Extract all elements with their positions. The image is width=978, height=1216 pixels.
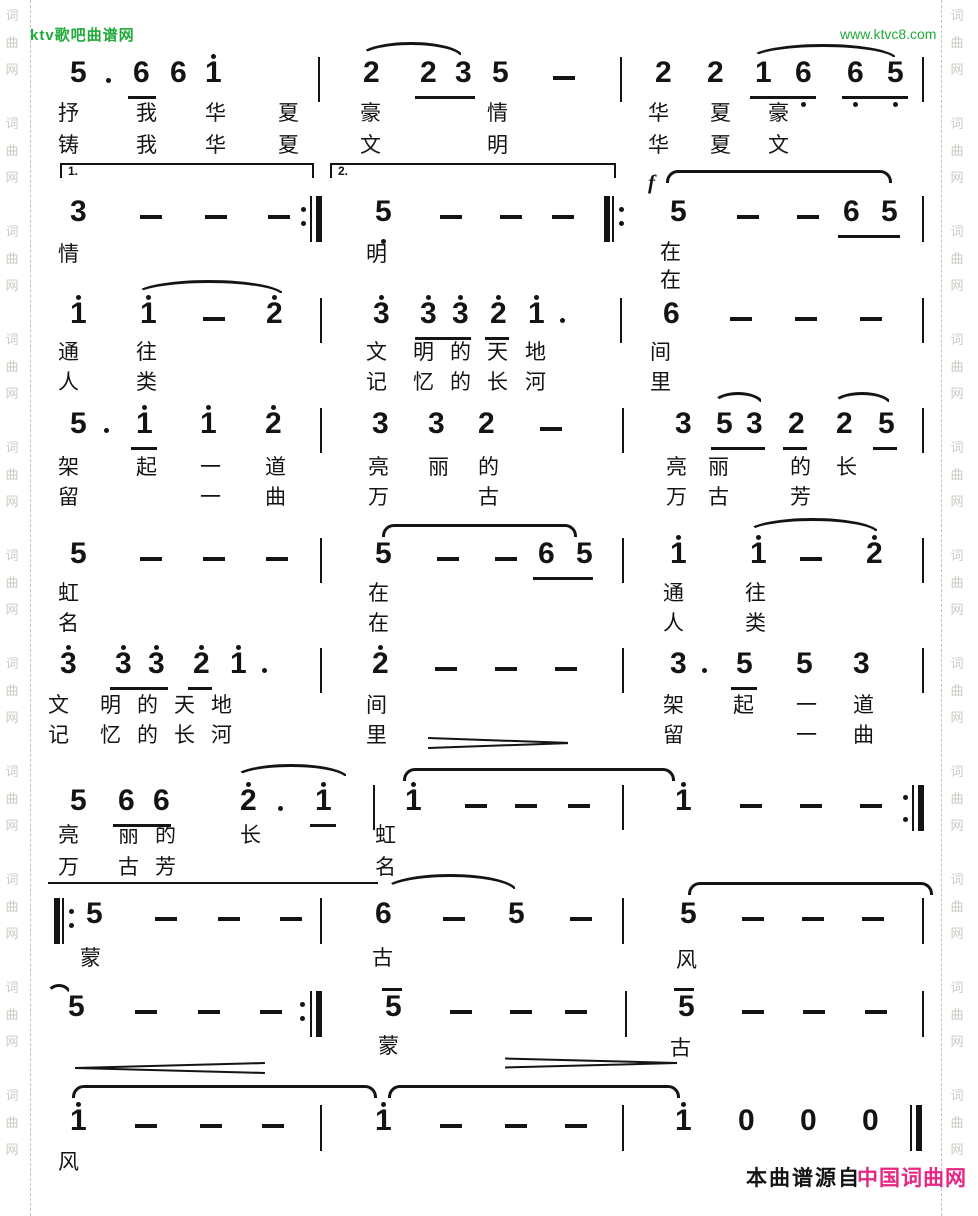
duration-dash [260, 1010, 282, 1014]
lyric-char: 蒙 [80, 948, 101, 969]
beam-underline [838, 235, 900, 238]
lyric-char: 明 [413, 342, 434, 363]
lyric-char: 我 [136, 135, 157, 156]
note-digit: 6 [170, 58, 187, 88]
duration-dash [860, 804, 882, 808]
lyric-char: 抒 [58, 103, 79, 124]
lyric-char: 明 [487, 135, 508, 156]
duration-dash [742, 1010, 764, 1014]
lyric-char: 曲 [265, 487, 286, 508]
barline [912, 785, 914, 831]
duration-dash [437, 557, 459, 561]
duration-dash [510, 1010, 532, 1014]
note-digit: 5 [508, 899, 525, 929]
note-digit: 6 [375, 899, 392, 929]
lyric-char: 古 [708, 487, 729, 508]
lyric-char: 夏 [278, 103, 299, 124]
lyric-char: 情 [487, 103, 508, 124]
lyric-char: 一 [200, 457, 221, 478]
lyric-char: 间 [366, 695, 387, 716]
duration-dash [435, 667, 457, 671]
source-label: 本曲谱源自 [746, 1162, 861, 1192]
volta-bracket: 2. [330, 163, 616, 178]
source-site: 中国词曲网 [857, 1162, 967, 1192]
lyric-char: 名 [58, 613, 79, 634]
note-digit: 5 [375, 197, 392, 227]
lyric-char: 文 [360, 135, 381, 156]
note-digit: 3 [420, 299, 437, 329]
lyric-char: 间 [650, 342, 671, 363]
dot [458, 295, 463, 300]
lyric-char: 古 [478, 487, 499, 508]
lyric-char: 亮 [666, 457, 687, 478]
note-digit: 3 [455, 58, 472, 88]
note-digit: 0 [800, 1106, 817, 1136]
lyric-char: 芳 [155, 857, 176, 878]
note-digit: 5 [678, 992, 695, 1022]
lyric-char: 在 [368, 583, 389, 604]
slur-arc [133, 280, 285, 296]
note-digit: 5 [492, 58, 509, 88]
note-digit: 1 [375, 1106, 392, 1136]
score-canvas: 56612235221665抒我华夏豪情华夏豪铸我华夏文明华夏文1.2.35f5… [0, 0, 978, 1216]
note-digit: 5 [576, 539, 593, 569]
duration-dash [802, 917, 824, 921]
note-digit: 3 [675, 409, 692, 439]
note-digit: 1 [750, 539, 767, 569]
barline [910, 1105, 912, 1151]
barline [62, 898, 64, 944]
lyric-char: 架 [663, 695, 684, 716]
dot [211, 54, 216, 59]
lyric-char: 人 [58, 372, 79, 393]
lyric-char: 留 [58, 487, 79, 508]
note-digit: 5 [70, 58, 87, 88]
lyric-char: 的 [790, 457, 811, 478]
beam-underline [415, 96, 475, 99]
duration-dash [730, 317, 752, 321]
volta-number: 1. [68, 165, 78, 177]
dot [69, 909, 74, 914]
lyric-char: 长 [240, 825, 261, 846]
note-digit: 2 [490, 299, 507, 329]
note-digit: 3 [373, 299, 390, 329]
dot [300, 1016, 305, 1021]
dot [206, 405, 211, 410]
dot [236, 645, 241, 650]
duration-dash [450, 1010, 472, 1014]
barline [612, 196, 614, 242]
duration-dash [495, 667, 517, 671]
dot [381, 1102, 386, 1107]
lyric-char: 夏 [710, 135, 731, 156]
note-digit: 5 [887, 58, 904, 88]
note-digit: 6 [847, 58, 864, 88]
note-digit: 5 [375, 539, 392, 569]
note-digit: 1 [675, 1106, 692, 1136]
note-digit: 2 [240, 786, 257, 816]
note-digit: 1 [755, 58, 772, 88]
dot [756, 535, 761, 540]
note-digit: 6 [843, 197, 860, 227]
duration-dash [803, 1010, 825, 1014]
dot [872, 535, 877, 540]
barline [922, 196, 924, 242]
duration-dash [553, 76, 575, 80]
lyric-char: 在 [368, 613, 389, 634]
dot [146, 295, 151, 300]
note-digit: 3 [70, 197, 87, 227]
lyric-char: 华 [648, 135, 669, 156]
duration-dash [742, 917, 764, 921]
lyric-char: 曲 [853, 725, 874, 746]
lyric-char: 记 [366, 372, 387, 393]
note-digit: 5 [878, 409, 895, 439]
lyric-char: 夏 [278, 135, 299, 156]
note-digit: 1 [140, 299, 157, 329]
dot [300, 1002, 305, 1007]
note-digit: 2 [836, 409, 853, 439]
sheet-music-page: 词 曲 网 词 曲 网 词 曲 网 词 曲 网 词 曲 网 词 曲 网 词 曲 … [0, 0, 978, 1216]
note-digit: 3 [148, 649, 165, 679]
note-digit: 2 [363, 58, 380, 88]
note-digit: 5 [716, 409, 733, 439]
dot [379, 295, 384, 300]
slur-arc [745, 518, 880, 534]
duration-dash [135, 1124, 157, 1128]
duration-dash [865, 1010, 887, 1014]
note-digit: 2 [420, 58, 437, 88]
lyric-char: 通 [663, 583, 684, 604]
slur-arc [832, 392, 892, 405]
barline [922, 648, 924, 693]
lyric-char: 类 [136, 372, 157, 393]
lyric-char: 华 [648, 103, 669, 124]
lyric-char: 的 [450, 342, 471, 363]
duration-dash [540, 427, 562, 431]
duration-dash [862, 917, 884, 921]
lyric-char: 天 [487, 342, 508, 363]
duration-dash [262, 1124, 284, 1128]
dot [411, 782, 416, 787]
lyric-char: 名 [375, 857, 396, 878]
note-digit: 1 [70, 299, 87, 329]
note-digit: 2 [655, 58, 672, 88]
note-digit: 2 [788, 409, 805, 439]
duration-dash [565, 1010, 587, 1014]
note-digit: 6 [153, 786, 170, 816]
barline-thick [918, 785, 924, 831]
lyric-char: 里 [650, 372, 671, 393]
duration-dash [505, 1124, 527, 1128]
barline [625, 991, 627, 1037]
barline [922, 991, 924, 1037]
dot [121, 645, 126, 650]
note-digit: 2 [478, 409, 495, 439]
duration-dash [200, 1124, 222, 1128]
duration-dash [140, 215, 162, 219]
lyric-char: 华 [205, 135, 226, 156]
lyric-char: 的 [155, 825, 176, 846]
barline [622, 648, 624, 693]
slur-arc [382, 874, 518, 892]
barline-thick [54, 898, 60, 944]
lyric-char: 人 [663, 613, 684, 634]
beam-underline [128, 96, 156, 99]
lyric-char: 长 [836, 457, 857, 478]
barline [622, 538, 624, 583]
dot [278, 806, 283, 811]
note-digit: 5 [736, 649, 753, 679]
barline-thick [916, 1105, 922, 1151]
dot [66, 645, 71, 650]
dot [619, 221, 624, 226]
note-digit: 0 [738, 1106, 755, 1136]
lyric-char: 一 [796, 695, 817, 716]
lyric-char: 古 [372, 948, 393, 969]
note-digit: 6 [663, 299, 680, 329]
note-digit: 3 [372, 409, 389, 439]
beam-underline [750, 96, 816, 99]
note-digit: 0 [862, 1106, 879, 1136]
lyric-char: 古 [118, 857, 139, 878]
note-digit: 5 [68, 992, 85, 1022]
lyric-char: 明 [100, 695, 121, 716]
note-digit: 1 [230, 649, 247, 679]
barline [922, 298, 924, 343]
dot [104, 428, 109, 433]
dot [893, 102, 898, 107]
dot [69, 923, 74, 928]
lyric-char: 架 [58, 457, 79, 478]
duration-dash [280, 917, 302, 921]
dot [534, 295, 539, 300]
lyric-char: 万 [666, 487, 687, 508]
barline [318, 57, 320, 102]
phrase-slur [72, 1085, 377, 1098]
duration-dash [500, 215, 522, 219]
barline [622, 785, 624, 830]
phrase-slur [403, 768, 675, 781]
note-digit: 1 [136, 409, 153, 439]
duration-dash [205, 215, 227, 219]
duration-dash [155, 917, 177, 921]
dot [378, 645, 383, 650]
note-digit: 5 [670, 197, 687, 227]
dynamic-f: f [648, 172, 655, 193]
note-digit: 2 [866, 539, 883, 569]
lyric-char: 风 [676, 950, 697, 971]
barline-thick [604, 196, 610, 242]
dot [560, 318, 565, 323]
lyric-char: 地 [211, 695, 232, 716]
barline [620, 298, 622, 343]
note-digit: 1 [70, 1106, 87, 1136]
lyric-char: 蒙 [378, 1036, 399, 1057]
lyric-char: 往 [136, 342, 157, 363]
phrase-slur [688, 882, 933, 895]
note-digit: 2 [372, 649, 389, 679]
dot [301, 221, 306, 226]
dot [154, 645, 159, 650]
lyric-char: 华 [205, 103, 226, 124]
lyric-char: 长 [487, 372, 508, 393]
lyric-char: 的 [478, 457, 499, 478]
note-digit: 3 [853, 649, 870, 679]
note-digit: 1 [528, 299, 545, 329]
lyric-char: 忆 [413, 372, 434, 393]
note-digit: 1 [200, 409, 217, 439]
dot [301, 207, 306, 212]
hairpin-line [505, 1062, 677, 1069]
beam-underline [310, 824, 336, 827]
note-digit: 2 [266, 299, 283, 329]
lyric-char: 亮 [368, 457, 389, 478]
duration-dash [740, 804, 762, 808]
lyric-char: 天 [174, 695, 195, 716]
lyric-char: 虹 [375, 825, 396, 846]
barline [922, 57, 924, 102]
phrase-slur [666, 170, 892, 183]
barline-thick [316, 991, 322, 1037]
lyric-char: 万 [58, 857, 79, 878]
note-digit: 1 [405, 786, 422, 816]
lyric-char: 豪 [360, 103, 381, 124]
beam-underline [711, 447, 765, 450]
duration-dash [552, 215, 574, 219]
barline [922, 408, 924, 453]
lyric-char: 道 [853, 695, 874, 716]
duration-dash [140, 557, 162, 561]
lyric-char: 通 [58, 342, 79, 363]
lyric-char: 记 [48, 725, 69, 746]
note-digit: 6 [795, 58, 812, 88]
dot [106, 78, 111, 83]
barline [310, 196, 312, 242]
lyric-char: 道 [265, 457, 286, 478]
beam-underline [842, 96, 908, 99]
note-digit: 2 [193, 649, 210, 679]
lyric-char: 留 [663, 725, 684, 746]
dot [76, 1102, 81, 1107]
dot [246, 782, 251, 787]
hairpin-line [48, 882, 378, 884]
dot [199, 645, 204, 650]
lyric-char: 铸 [58, 135, 79, 156]
lyric-char: 在 [660, 270, 681, 291]
lyric-char: 文 [366, 342, 387, 363]
lyric-char: 在 [660, 242, 681, 263]
duration-dash [800, 557, 822, 561]
note-digit: 1 [315, 786, 332, 816]
note-digit: 3 [452, 299, 469, 329]
volta-bracket: 1. [60, 163, 314, 178]
dot [272, 295, 277, 300]
barline [922, 538, 924, 583]
dot [321, 782, 326, 787]
note-digit: 1 [205, 58, 222, 88]
beam-underline [110, 687, 168, 690]
duration-dash [203, 317, 225, 321]
dot [676, 535, 681, 540]
slur-arc [233, 764, 349, 779]
duration-dash [135, 1010, 157, 1014]
dot [426, 295, 431, 300]
dot [619, 207, 624, 212]
lyric-char: 类 [745, 613, 766, 634]
dot [262, 668, 267, 673]
beam-underline [783, 447, 807, 450]
dot [702, 668, 707, 673]
lyric-char: 往 [745, 583, 766, 604]
note-digit: 3 [60, 649, 77, 679]
lyric-char: 长 [174, 725, 195, 746]
duration-dash [797, 215, 819, 219]
duration-dash [570, 917, 592, 921]
note-digit: 6 [133, 58, 150, 88]
slur-arc [712, 392, 764, 405]
dot [496, 295, 501, 300]
beam-underline [533, 577, 593, 580]
note-digit: 5 [881, 197, 898, 227]
note-digit: 1 [675, 786, 692, 816]
note-digit: 5 [70, 786, 87, 816]
beam-underline [731, 687, 757, 690]
lyric-char: 地 [525, 342, 546, 363]
beam-underline [188, 687, 212, 690]
phrase-slur [388, 1085, 680, 1098]
duration-dash [443, 917, 465, 921]
note-digit: 5 [796, 649, 813, 679]
barline [320, 408, 322, 453]
note-digit: 5 [385, 992, 402, 1022]
note-digit: 5 [86, 899, 103, 929]
note-digit: 5 [680, 899, 697, 929]
hairpin-line [75, 1067, 265, 1074]
duration-dash [266, 557, 288, 561]
duration-dash [198, 1010, 220, 1014]
lyric-char: 丽 [708, 457, 729, 478]
note-digit: 3 [428, 409, 445, 439]
barline [622, 898, 624, 944]
note-digit: 3 [746, 409, 763, 439]
barline [310, 991, 312, 1037]
duration-dash [800, 804, 822, 808]
barline [320, 1105, 322, 1151]
lyric-char: 起 [136, 457, 157, 478]
note-digit: 6 [118, 786, 135, 816]
lyric-char: 一 [796, 725, 817, 746]
duration-dash [568, 804, 590, 808]
barline [620, 57, 622, 102]
duration-dash [465, 804, 487, 808]
duration-dash [795, 317, 817, 321]
lyric-char: 风 [58, 1152, 79, 1173]
note-digit: 6 [538, 539, 555, 569]
lyric-char: 的 [450, 372, 471, 393]
lyric-char: 情 [58, 244, 79, 265]
lyric-char: 古 [670, 1038, 691, 1059]
dot [853, 102, 858, 107]
note-digit: 5 [70, 539, 87, 569]
duration-dash [268, 215, 290, 219]
duration-dash [555, 667, 577, 671]
volta-number: 2. [338, 165, 348, 177]
lyric-char: 我 [136, 103, 157, 124]
duration-dash [440, 215, 462, 219]
lyric-char: 文 [768, 135, 789, 156]
phrase-slur [382, 524, 577, 537]
